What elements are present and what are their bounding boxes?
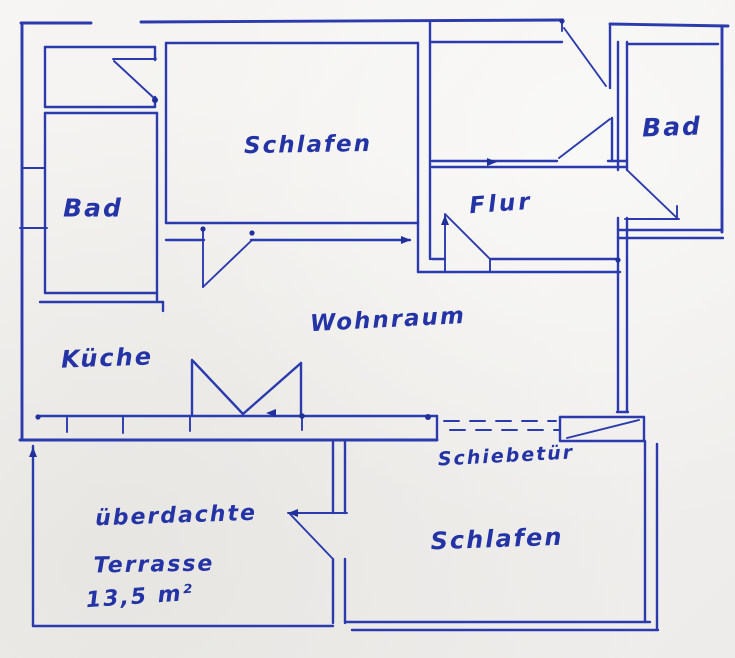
floorplan-scan: Schlafen Bad Bad Flur Wohnraum Küche Sch…	[0, 0, 735, 658]
room-label-terrasse-line2: Terrasse	[93, 551, 214, 578]
door-swing-flur-icon	[445, 214, 489, 259]
room-label-flur: Flur	[469, 189, 534, 219]
storage-room-walls	[45, 47, 155, 107]
room-label-schlafen-bottom: Schlafen	[430, 523, 564, 556]
flur-walls	[418, 259, 620, 272]
room-label-bad-right: Bad	[642, 111, 703, 142]
door-swing-hall-inner-icon	[559, 118, 612, 161]
door-swing-storage-icon	[113, 59, 158, 103]
casement-window-icon	[192, 360, 301, 415]
window-jambs-left-icon	[20, 168, 47, 228]
bath-right-walls	[617, 42, 723, 412]
sliding-door-dashes-icon	[444, 421, 560, 430]
door-swing-entry-icon	[559, 18, 610, 88]
sliding-door-pocket-wall	[560, 417, 644, 441]
door-swing-bath-right-icon	[625, 170, 679, 219]
entrance-hall-walls	[430, 21, 627, 259]
door-swing-bedroom-top-icon	[200, 226, 254, 287]
bottom-wall	[38, 416, 437, 440]
door-swing-terrace-icon	[288, 513, 347, 558]
room-label-kueche: Küche	[61, 342, 154, 373]
room-label-bad-left: Bad	[63, 194, 123, 223]
room-label-schlafen-top: Schlafen	[244, 131, 372, 159]
